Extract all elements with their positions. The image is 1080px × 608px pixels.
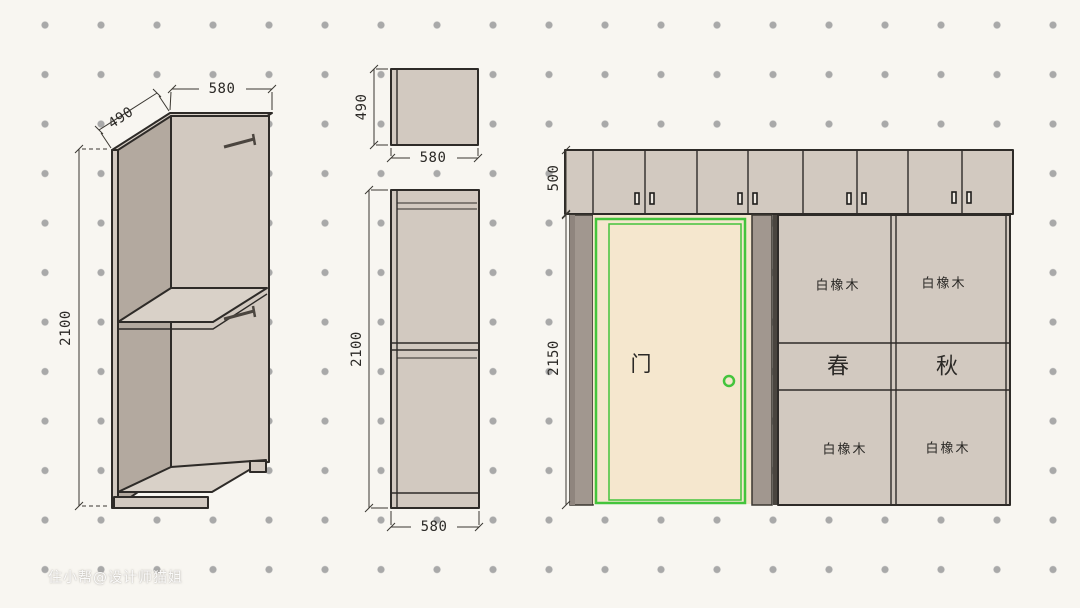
door: 门	[593, 215, 752, 504]
top-view-dim-width: 580	[387, 148, 482, 166]
iso-dim-height-label: 2100	[58, 310, 74, 346]
wardrobe-body	[778, 215, 1010, 505]
front-view-dim-height-label: 2100	[349, 331, 365, 367]
top-view-dim-depth-label: 490	[354, 94, 370, 121]
front-view-dim-width: 580	[387, 511, 483, 535]
iso-left-stile	[112, 150, 118, 508]
door-label: 门	[631, 352, 652, 376]
left-wall-column	[570, 215, 593, 505]
iso-dim-height: 2100	[58, 145, 110, 510]
top-view-body	[391, 69, 478, 145]
front-view: 2100 580	[349, 186, 483, 535]
elevation-dim-upper-label: 500	[546, 165, 562, 192]
front-view-body	[391, 190, 479, 508]
panel-label-top-left: 白橡木	[815, 278, 860, 294]
panel-label-mid-right: 秋	[936, 355, 958, 380]
elevation-lower-section: 门	[546, 211, 1010, 509]
iso-dim-width: 580	[168, 81, 276, 110]
elevation-view: 500 门	[546, 146, 1013, 509]
top-view: 490 580	[354, 65, 482, 166]
iso-dim-width-label: 580	[209, 81, 236, 97]
iso-plinth	[114, 497, 208, 508]
front-view-dim-width-label: 580	[421, 519, 448, 535]
watermark: 住小帮@设计师猫姐	[48, 567, 183, 587]
panel-label-top-right: 白橡木	[921, 276, 966, 292]
upper-cabinet-row: 500	[546, 146, 1013, 218]
upper-cabinet-body	[565, 150, 1013, 214]
wardrobe-panels: 白橡木 白橡木 春 秋 白橡木 白橡木	[778, 215, 1010, 505]
drawing-canvas: 2100 580 490	[0, 0, 1080, 608]
right-wall-column	[752, 215, 778, 505]
isometric-view: 2100 580 490	[58, 81, 276, 510]
elevation-dim-lower-label: 2150	[546, 340, 562, 376]
elevation-dim-upper: 500	[546, 146, 570, 218]
panel-label-bottom-left: 白橡木	[822, 442, 867, 458]
panel-label-bottom-right: 白橡木	[925, 441, 970, 457]
iso-dim-depth-label: 490	[105, 104, 136, 132]
door-opening-fill	[593, 215, 752, 504]
top-view-dim-depth: 490	[354, 65, 388, 149]
top-view-dim-width-label: 580	[420, 150, 447, 166]
front-view-dim-height: 2100	[349, 186, 388, 512]
panel-label-mid-left: 春	[827, 355, 849, 380]
iso-right-foot	[250, 461, 266, 472]
cabinet-drawing: 2100 580 490	[0, 0, 1080, 608]
elevation-dim-lower: 2150	[546, 211, 570, 509]
